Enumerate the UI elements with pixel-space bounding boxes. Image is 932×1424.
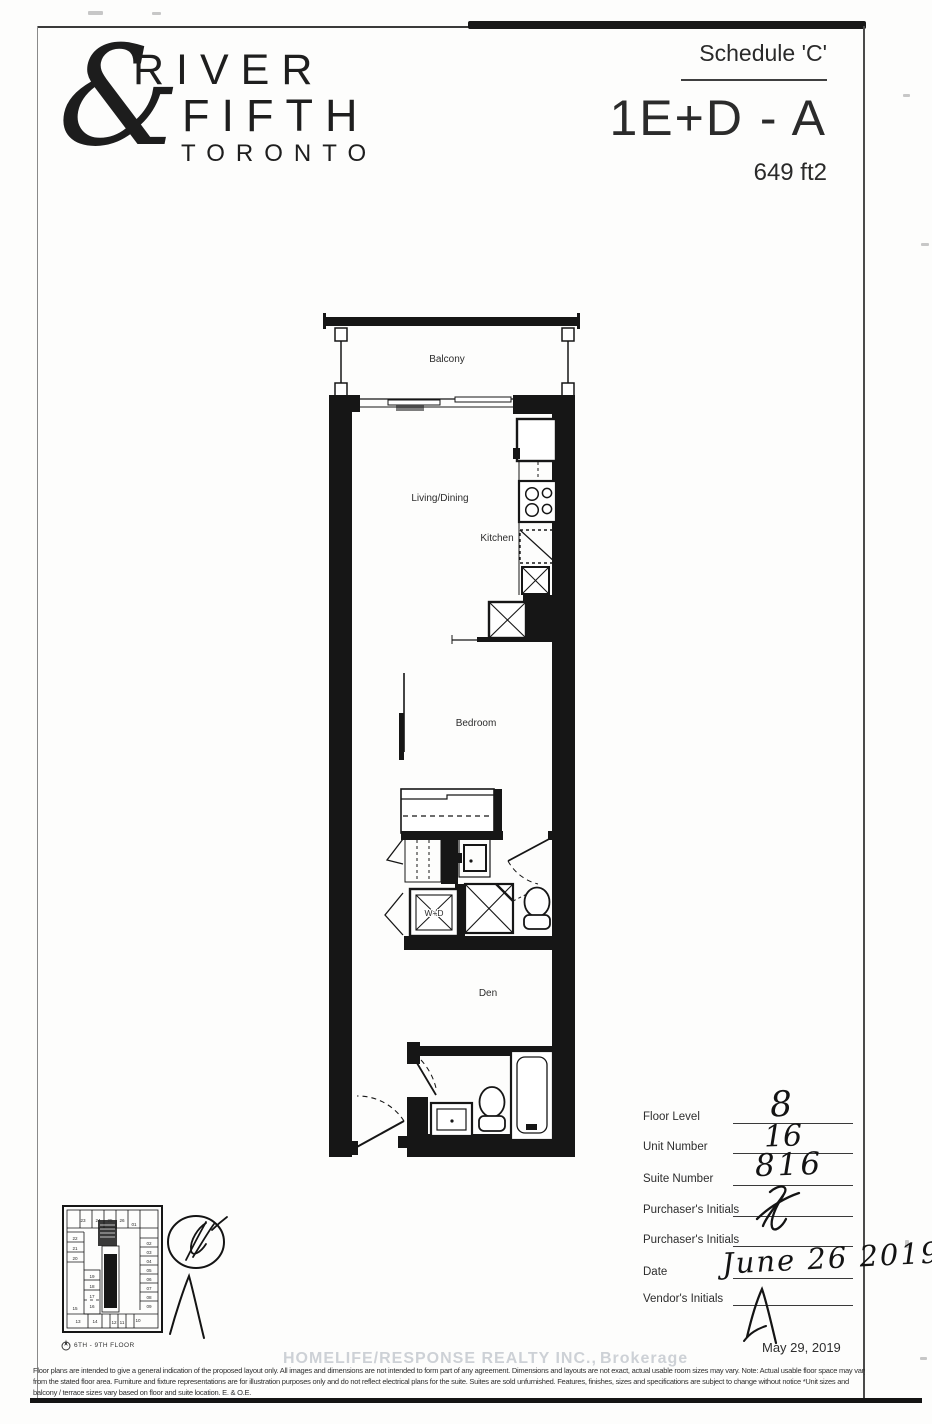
page-border-top-smudge xyxy=(468,21,866,29)
key-plan-unit: 10 xyxy=(135,1318,141,1323)
suite-area: 649 ft2 xyxy=(610,159,828,187)
scan-speck xyxy=(152,12,161,15)
key-plan-unit: 09 xyxy=(146,1304,152,1309)
form-row-purchaser-initials-1: Purchaser's Initials xyxy=(643,1199,853,1217)
key-plan-unit: 21 xyxy=(72,1246,78,1251)
bifold-door xyxy=(387,839,403,864)
logo-city: TORONTO xyxy=(181,140,377,168)
key-plan-unit: 26 xyxy=(119,1218,125,1223)
key-plan-unit: 16 xyxy=(89,1304,95,1309)
page-border-left xyxy=(37,26,38,1403)
key-plan-unit: 22 xyxy=(72,1236,78,1241)
fridge xyxy=(517,419,556,461)
form-row-vendor-initials: Vendor's Initials xyxy=(643,1288,853,1306)
scan-speck xyxy=(921,243,929,246)
key-plan-unit: 06 xyxy=(146,1277,152,1282)
bifold-door xyxy=(385,893,403,935)
suite-model-code: 1E+D - A xyxy=(610,89,828,147)
key-plan-caption: 6TH - 9TH FLOOR xyxy=(74,1342,135,1349)
form-line xyxy=(733,1305,853,1306)
stove xyxy=(519,481,556,522)
schedule-block: Schedule 'C' 1E+D - A 649 ft2 xyxy=(610,40,828,187)
key-plan-unit: 15 xyxy=(72,1306,78,1311)
key-plan-unit: 11 xyxy=(120,1320,125,1325)
form-label: Floor Level xyxy=(643,1111,700,1123)
key-plan-unit: 14 xyxy=(92,1319,98,1324)
bathroom-door-leaf xyxy=(508,838,551,861)
logo-name-bottom: FIFTH xyxy=(182,90,369,142)
page-border-right xyxy=(863,26,865,1403)
disclaimer-line3: balcony / terrace sizes vary based on fl… xyxy=(33,1388,865,1397)
schedule-underline xyxy=(681,79,827,81)
toilet2 xyxy=(480,1087,505,1117)
key-plan-unit: 01 xyxy=(131,1222,137,1227)
key-plan-unit: 02 xyxy=(146,1241,152,1246)
handwritten-suite-number: 816 xyxy=(754,1149,823,1182)
room-label-bedroom: Bedroom xyxy=(456,718,497,729)
circled-initials xyxy=(168,1216,224,1268)
form-label: Suite Number xyxy=(643,1173,713,1185)
room-label-washer-dryer: W+D xyxy=(424,908,443,918)
page-border-bottom xyxy=(30,1398,922,1403)
key-plan-unit: 18 xyxy=(89,1284,95,1289)
key-plan-unit: 07 xyxy=(146,1286,152,1291)
floor-plan: Balcony xyxy=(310,300,590,1175)
form-label: Vendor's Initials xyxy=(643,1293,723,1305)
key-plan-unit: 12 xyxy=(111,1320,117,1325)
room-label-living-dining: Living/Dining xyxy=(411,493,468,504)
disclaimer-line1: Floor plans are intended to give a gener… xyxy=(33,1366,865,1375)
schedule-label: Schedule 'C' xyxy=(610,40,828,67)
key-plan-unit: 03 xyxy=(146,1250,152,1255)
scanned-floor-plan-page: & RIVER FIFTH TORONTO Schedule 'C' 1E+D … xyxy=(0,0,932,1424)
key-plan-unit: 17 xyxy=(89,1294,95,1299)
form-label: Unit Number xyxy=(643,1141,708,1153)
toilet xyxy=(525,888,550,917)
keyplan-initial-a xyxy=(170,1276,204,1338)
key-plan-unit: 19 xyxy=(89,1274,95,1279)
wall-left xyxy=(329,395,352,1157)
room-label-balcony: Balcony xyxy=(429,354,465,365)
key-plan-unit: 24 xyxy=(95,1218,101,1223)
bathroom-sink xyxy=(464,845,486,871)
disclaimer-line2: from the stated floor area. Furniture an… xyxy=(33,1377,865,1386)
bathroom2-door-leaf xyxy=(414,1058,436,1095)
key-plan: 23 24 25 26 01 02 03 04 05 06 07 08 09 2… xyxy=(58,1198,170,1345)
form-line xyxy=(733,1216,853,1217)
key-plan-core xyxy=(104,1254,117,1308)
scan-speck xyxy=(920,1357,927,1360)
form-label: Date xyxy=(643,1266,667,1278)
key-plan-unit: 08 xyxy=(146,1295,152,1300)
logo-name-top: RIVER xyxy=(133,46,324,95)
balcony-edge xyxy=(325,317,578,326)
entry-door-swing xyxy=(357,1096,404,1121)
form-row-floor-level: Floor Level xyxy=(643,1106,853,1124)
key-plan-unit: 23 xyxy=(80,1218,86,1223)
key-plan-unit: 04 xyxy=(146,1259,152,1264)
floor-plan-drawing: Balcony xyxy=(310,300,590,1170)
room-label-kitchen: Kitchen xyxy=(480,533,513,544)
key-plan-unit: 20 xyxy=(72,1256,78,1261)
handwritten-date: June 26 2019 xyxy=(721,1238,932,1278)
key-plan-drawing: 23 24 25 26 01 02 03 04 05 06 07 08 09 2… xyxy=(58,1198,170,1340)
key-plan-unit: 05 xyxy=(146,1268,152,1273)
scan-speck xyxy=(903,94,910,97)
scan-speck xyxy=(88,11,103,15)
north-arrow-icon xyxy=(60,1339,72,1351)
form-label: Purchaser's Initials xyxy=(643,1204,739,1216)
entry-door-leaf xyxy=(355,1121,404,1148)
key-plan-unit: 13 xyxy=(75,1319,81,1324)
key-plan-unit: 25 xyxy=(107,1218,113,1223)
form-line xyxy=(733,1185,853,1186)
room-label-den: Den xyxy=(479,988,497,999)
print-date: May 29, 2019 xyxy=(762,1340,841,1355)
form-label: Purchaser's Initials xyxy=(643,1234,739,1246)
